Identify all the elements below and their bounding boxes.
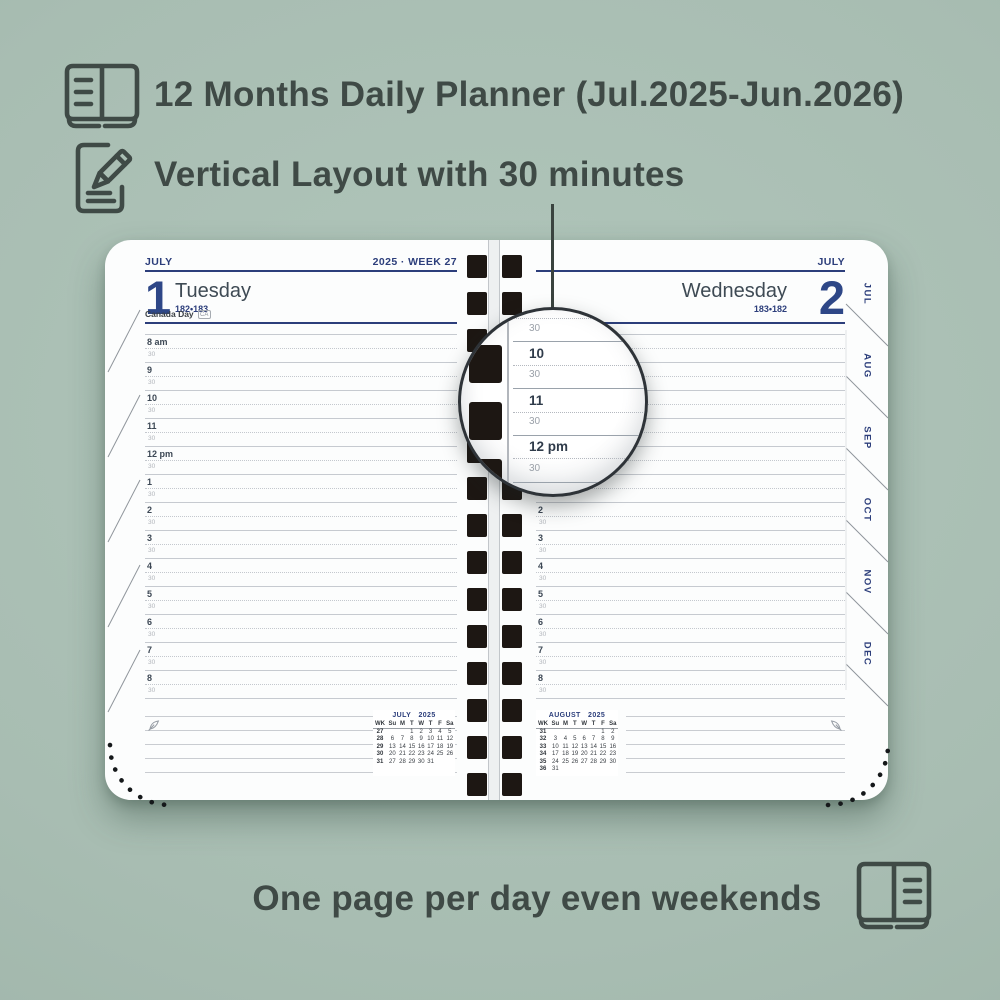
calendar-day-cell	[387, 728, 398, 736]
calendar-day-cell: 29	[598, 759, 607, 767]
product-image: 12 Months Daily Planner (Jul.2025-Jun.20…	[0, 0, 1000, 1000]
spiral-hole	[467, 736, 487, 759]
month-tab-jul: JUL	[846, 258, 888, 330]
calendar-day-cell: 11	[435, 736, 444, 744]
spiral-hole	[502, 625, 522, 648]
spiral-hole	[467, 699, 487, 722]
calendar-day-cell: 28	[398, 759, 407, 767]
spiral-hole	[502, 736, 522, 759]
week-label: 2025 · WEEK 27	[373, 256, 457, 268]
schedule-hour-label: 2	[538, 505, 543, 515]
magnifier-time-label: 30	[529, 323, 540, 334]
schedule-hour-label: 8	[147, 673, 152, 683]
schedule-hour-label: 6	[147, 617, 152, 627]
spiral-hole	[467, 588, 487, 611]
calendar-day-cell: 17	[550, 751, 561, 759]
schedule-half-row: 30	[145, 685, 457, 699]
open-book-lines-icon	[848, 850, 940, 947]
magnifier-row: 30	[513, 366, 648, 389]
schedule-half-label: 30	[539, 575, 546, 582]
month-tab-label: AUG	[862, 353, 873, 379]
schedule-hour-label: 6	[538, 617, 543, 627]
month-tab-label: NOV	[862, 569, 873, 594]
calendar-day-cell: 4	[561, 736, 570, 744]
spiral-hole	[502, 255, 522, 278]
schedule-hour-row: 2	[536, 503, 845, 517]
schedule-half-row: 30	[145, 433, 457, 447]
month-tab-aug: AUG	[846, 330, 888, 402]
spiral-hole	[467, 662, 487, 685]
calendar-day-cell: 15	[598, 744, 607, 752]
footer-row: One page per day even weekends	[96, 850, 1000, 947]
header-rule	[145, 270, 457, 272]
schedule-half-row: 30	[145, 545, 457, 559]
mini-calendar-title: AUGUST 2025	[536, 712, 618, 719]
calendar-day-cell: 26	[445, 751, 455, 759]
calendar-day-cell: 15	[407, 744, 416, 752]
schedule-half-label: 30	[148, 407, 155, 414]
schedule-half-label: 30	[539, 687, 546, 694]
magnifier-row: 10	[513, 342, 648, 365]
schedule-half-row: 30	[145, 517, 457, 531]
schedule-hour-row: 1	[145, 475, 457, 489]
calendar-day-cell: 5	[570, 736, 579, 744]
calendar-day-cell: 29	[373, 744, 387, 752]
calendar-day-cell: 27	[373, 728, 387, 736]
schedule-hour-row: 8	[536, 671, 845, 685]
schedule-half-row: 30	[536, 573, 845, 587]
schedule-half-label: 30	[148, 491, 155, 498]
schedule-half-row: 30	[145, 657, 457, 671]
schedule-half-label: 30	[148, 379, 155, 386]
schedule-half-row: 30	[145, 349, 457, 363]
calendar-col-header: W	[417, 720, 426, 728]
schedule-half-label: 30	[148, 519, 155, 526]
mini-calendar-august: AUGUST 2025WKSuMTWTFSa311232345678933101…	[536, 710, 618, 776]
spiral-hole-magnified	[469, 345, 502, 383]
schedule-hour-label: 3	[538, 533, 543, 543]
magnifier-circle: 301030113012 pm30	[458, 307, 648, 497]
calendar-day-cell: 25	[435, 751, 444, 759]
schedule-hour-row: 7	[536, 643, 845, 657]
month-tab-oct: OCT	[846, 474, 888, 546]
magnifier-time-label: 11	[529, 393, 543, 408]
schedule-hour-label: 2	[147, 505, 152, 515]
schedule-half-label: 30	[539, 659, 546, 666]
calendar-day-cell: 1	[407, 728, 416, 736]
calendar-week-row: 3020212223242526	[373, 751, 455, 759]
quill-icon	[830, 719, 843, 737]
month-tab-label: SEP	[862, 426, 873, 450]
month-label: JULY	[145, 256, 172, 268]
mini-calendar-table: WKSuMTWTFSa31123234567893310111213141516…	[536, 720, 618, 774]
calendar-day-cell: 27	[387, 759, 398, 767]
schedule-hour-label: 11	[147, 421, 157, 431]
schedule-half-label: 30	[539, 547, 546, 554]
calendar-day-cell: 14	[398, 744, 407, 752]
schedule-half-row: 30	[145, 461, 457, 475]
calendar-day-cell: 6	[387, 736, 398, 744]
note-line	[626, 717, 845, 731]
calendar-week-row: 2913141516171819	[373, 744, 455, 752]
calendar-day-cell: 28	[589, 759, 598, 767]
schedule-half-label: 30	[148, 659, 155, 666]
schedule-hour-row: 11	[145, 419, 457, 433]
calendar-day-cell: 8	[407, 736, 416, 744]
calendar-day-cell: 2	[608, 728, 618, 736]
spiral-hole-magnified	[469, 402, 502, 440]
spiral-hole	[467, 551, 487, 574]
schedule-half-row: 30	[145, 601, 457, 615]
schedule-half-label: 30	[148, 547, 155, 554]
month-tab-label: JUL	[862, 283, 873, 305]
left-page: JULY 2025 · WEEK 27 1 Tuesday 182•183 Ca…	[145, 240, 457, 800]
calendar-day-cell: 11	[561, 744, 570, 752]
schedule-hour-label: 8	[538, 673, 543, 683]
holiday-flag-badge: CA	[198, 310, 211, 319]
feature-label: 12 Months Daily Planner (Jul.2025-Jun.20…	[154, 75, 904, 115]
feature-label: Vertical Layout with 30 minutes	[154, 155, 685, 195]
calendar-day-cell	[598, 766, 607, 774]
calendar-col-header: Sa	[445, 720, 455, 728]
magnified-schedule-rows: 301030113012 pm30	[513, 318, 648, 483]
schedule-hour-label: 3	[147, 533, 152, 543]
month-tab-sep: SEP	[846, 402, 888, 474]
calendar-col-header: WK	[536, 720, 550, 728]
spiral-hole-magnified	[469, 307, 502, 326]
calendar-col-header: Sa	[608, 720, 618, 728]
calendar-day-cell	[580, 766, 589, 774]
calendar-col-header: W	[580, 720, 589, 728]
schedule-hour-label: 7	[538, 645, 543, 655]
calendar-day-cell: 12	[445, 736, 455, 744]
note-line	[626, 745, 845, 759]
calendar-day-cell: 1	[598, 728, 607, 736]
calendar-day-cell: 22	[598, 751, 607, 759]
spiral-hole	[502, 662, 522, 685]
calendar-day-cell: 30	[608, 759, 618, 767]
calendar-col-header: T	[589, 720, 598, 728]
schedule-hour-row: 7	[145, 643, 457, 657]
schedule-half-label: 30	[539, 603, 546, 610]
schedule-hour-label: 5	[538, 589, 543, 599]
magnifier-row: 30	[513, 319, 648, 342]
calendar-day-cell	[561, 728, 570, 736]
calendar-day-cell: 16	[417, 744, 426, 752]
schedule-hour-row: 6	[536, 615, 845, 629]
calendar-day-cell: 9	[608, 736, 618, 744]
calendar-day-cell: 20	[580, 751, 589, 759]
calendar-week-row: 312728293031	[373, 759, 455, 767]
spiral-hole	[467, 625, 487, 648]
calendar-day-cell	[570, 728, 579, 736]
month-label: JULY	[818, 256, 845, 268]
schedule-hour-row: 10	[145, 391, 457, 405]
calendar-day-cell	[550, 728, 561, 736]
calendar-day-cell: 25	[561, 759, 570, 767]
calendar-day-cell: 22	[407, 751, 416, 759]
schedule-half-label: 30	[148, 463, 155, 470]
calendar-day-cell: 29	[407, 759, 416, 767]
calendar-col-header: Su	[550, 720, 561, 728]
calendar-week-row: 2712345	[373, 728, 455, 736]
schedule-hour-label: 4	[538, 561, 543, 571]
schedule-hour-row: 4	[145, 559, 457, 573]
header-rule	[536, 270, 845, 272]
calendar-day-cell: 19	[570, 751, 579, 759]
magnifier-row: 11	[513, 389, 648, 412]
calendar-day-cell: 21	[398, 751, 407, 759]
calendar-day-cell: 21	[589, 751, 598, 759]
left-page-header: JULY 2025 · WEEK 27	[145, 256, 457, 268]
schedule-hour-row: 6	[145, 615, 457, 629]
right-notes-section	[626, 716, 845, 773]
calendar-col-header: WK	[373, 720, 387, 728]
mini-calendar-table: WKSuMTWTFSa27123452867891011122913141516…	[373, 720, 455, 766]
calendar-day-cell: 5	[445, 728, 455, 736]
schedule-hour-label: 12 pm	[147, 449, 173, 459]
schedule-hour-row: 3	[145, 531, 457, 545]
feature-row-layout: Vertical Layout with 30 minutes	[50, 126, 685, 224]
calendar-week-row: 3417181920212223	[536, 751, 618, 759]
calendar-day-cell: 28	[373, 736, 387, 744]
calendar-day-cell	[589, 766, 598, 774]
schedule-half-label: 30	[148, 351, 155, 358]
calendar-header-row: WKSuMTWTFSa	[373, 720, 455, 728]
spiral-hole-magnified	[469, 459, 502, 497]
calendar-day-cell: 3	[426, 728, 435, 736]
holiday-label: Canada DayCA	[145, 309, 211, 319]
calendar-day-cell: 31	[373, 759, 387, 767]
schedule-hour-row: 8 am	[145, 335, 457, 349]
spiral-hole	[467, 255, 487, 278]
calendar-day-cell: 10	[550, 744, 561, 752]
calendar-day-cell: 7	[398, 736, 407, 744]
calendar-day-cell	[445, 759, 455, 767]
schedule-hour-row: 12 pm	[145, 447, 457, 461]
page-edge-line-magnified	[507, 307, 509, 497]
calendar-header-row: WKSuMTWTFSa	[536, 720, 618, 728]
schedule-hour-label: 5	[147, 589, 152, 599]
magnifier-time-label: 12 pm	[529, 439, 568, 454]
schedule-half-row: 30	[145, 629, 457, 643]
calendar-day-cell: 23	[608, 751, 618, 759]
calendar-col-header: T	[570, 720, 579, 728]
schedule-half-row: 30	[536, 601, 845, 615]
calendar-day-cell: 2	[417, 728, 426, 736]
calendar-day-cell: 9	[417, 736, 426, 744]
schedule-half-row: 30	[145, 405, 457, 419]
calendar-day-cell: 34	[536, 751, 550, 759]
schedule-hour-label: 1	[147, 477, 152, 487]
callout-connector-line	[551, 204, 554, 312]
open-book-icon	[50, 55, 154, 135]
calendar-col-header: M	[398, 720, 407, 728]
magnifier-row: 12 pm	[513, 436, 648, 459]
schedule-half-row: 30	[145, 377, 457, 391]
weekday-label: Wednesday	[682, 280, 787, 303]
schedule-half-label: 30	[148, 435, 155, 442]
calendar-day-cell	[561, 766, 570, 774]
schedule-hour-label: 9	[147, 365, 152, 375]
schedule-half-row: 30	[145, 573, 457, 587]
calendar-day-cell: 24	[426, 751, 435, 759]
calendar-day-cell: 12	[570, 744, 579, 752]
magnifier-row: 30	[513, 459, 648, 482]
calendar-week-row: 3112	[536, 728, 618, 736]
schedule-half-row: 30	[536, 657, 845, 671]
calendar-day-cell: 26	[570, 759, 579, 767]
calendar-day-cell	[570, 766, 579, 774]
schedule-hour-row: 9	[145, 363, 457, 377]
schedule-hour-label: 8 am	[147, 337, 168, 347]
calendar-day-cell: 16	[608, 744, 618, 752]
schedule-half-label: 30	[539, 631, 546, 638]
calendar-col-header: T	[426, 720, 435, 728]
magnifier-time-label: 30	[529, 369, 540, 380]
calendar-day-cell: 8	[598, 736, 607, 744]
schedule-half-row: 30	[536, 545, 845, 559]
calendar-col-header: F	[435, 720, 444, 728]
calendar-day-cell: 18	[435, 744, 444, 752]
calendar-day-cell	[608, 766, 618, 774]
month-tab-dec: DEC	[846, 618, 888, 690]
schedule-hour-label: 4	[147, 561, 152, 571]
left-schedule-grid: 8 am309301030113012 pm301302303304305306…	[145, 334, 457, 699]
calendar-day-cell: 20	[387, 751, 398, 759]
schedule-half-label: 30	[148, 631, 155, 638]
schedule-half-label: 30	[148, 687, 155, 694]
magnifier-time-label: 30	[529, 463, 540, 474]
calendar-day-cell: 13	[387, 744, 398, 752]
month-tab-nov: NOV	[846, 546, 888, 618]
schedule-hour-row: 8	[145, 671, 457, 685]
note-line	[626, 759, 845, 773]
calendar-day-cell	[435, 759, 444, 767]
calendar-week-row: 3524252627282930	[536, 759, 618, 767]
magnifier-time-label: 10	[529, 346, 544, 361]
calendar-day-cell	[589, 728, 598, 736]
calendar-day-cell: 18	[561, 751, 570, 759]
magnifier-time-label: 30	[529, 416, 540, 427]
spiral-hole	[502, 699, 522, 722]
schedule-half-row: 30	[536, 629, 845, 643]
calendar-day-cell: 31	[550, 766, 561, 774]
calendar-day-cell: 17	[426, 744, 435, 752]
calendar-day-cell: 4	[435, 728, 444, 736]
calendar-day-cell: 24	[550, 759, 561, 767]
calendar-day-cell: 30	[373, 751, 387, 759]
calendar-day-cell: 31	[536, 728, 550, 736]
schedule-hour-row: 5	[536, 587, 845, 601]
calendar-day-cell: 33	[536, 744, 550, 752]
spiral-hole	[502, 292, 522, 315]
date-number: 2	[819, 276, 845, 320]
calendar-week-row: 3310111213141516	[536, 744, 618, 752]
schedule-half-label: 30	[148, 603, 155, 610]
schedule-hour-row: 5	[145, 587, 457, 601]
spiral-hole	[502, 551, 522, 574]
month-tab-strip: JULAUGSEPOCTNOVDEC	[846, 258, 888, 690]
quill-icon	[147, 719, 160, 737]
spiral-hole	[502, 514, 522, 537]
schedule-hour-row: 4	[536, 559, 845, 573]
mini-calendar-title: JULY 2025	[373, 712, 455, 719]
calendar-day-cell: 30	[417, 759, 426, 767]
calendar-day-cell: 3	[550, 736, 561, 744]
footer-label: One page per day even weekends	[252, 879, 821, 919]
calendar-day-cell: 23	[417, 751, 426, 759]
calendar-week-row: 323456789	[536, 736, 618, 744]
pencil-note-icon	[50, 131, 154, 219]
note-line	[626, 731, 845, 745]
schedule-hour-row: 2	[145, 503, 457, 517]
spiral-hole	[502, 773, 522, 796]
calendar-col-header: F	[598, 720, 607, 728]
right-page-header: JULY	[536, 256, 845, 268]
magnifier-row: 30	[513, 413, 648, 436]
calendar-col-header: T	[407, 720, 416, 728]
schedule-hour-label: 10	[147, 393, 157, 403]
calendar-day-cell: 6	[580, 736, 589, 744]
calendar-day-cell: 13	[580, 744, 589, 752]
schedule-hour-label: 7	[147, 645, 152, 655]
schedule-half-row: 30	[536, 685, 845, 699]
month-tab-label: OCT	[862, 498, 873, 523]
schedule-half-row: 30	[145, 489, 457, 503]
weekday-label: Tuesday	[175, 280, 251, 303]
calendar-day-cell: 36	[536, 766, 550, 774]
calendar-day-cell	[580, 728, 589, 736]
month-tab-label: DEC	[862, 642, 873, 667]
calendar-day-cell: 35	[536, 759, 550, 767]
calendar-day-cell: 27	[580, 759, 589, 767]
spiral-hole	[502, 588, 522, 611]
calendar-week-row: 3631	[536, 766, 618, 774]
schedule-half-row: 30	[536, 517, 845, 531]
calendar-day-cell: 14	[589, 744, 598, 752]
calendar-day-cell: 31	[426, 759, 435, 767]
mini-calendar-july: JULY 2025WKSuMTWTFSa27123452867891011122…	[373, 710, 455, 776]
date-rule	[145, 322, 457, 324]
spiral-hole	[467, 773, 487, 796]
schedule-hour-row: 3	[536, 531, 845, 545]
spiral-hole	[467, 514, 487, 537]
schedule-half-label: 30	[148, 575, 155, 582]
schedule-half-label: 30	[539, 519, 546, 526]
calendar-day-cell: 32	[536, 736, 550, 744]
calendar-col-header: Su	[387, 720, 398, 728]
calendar-day-cell	[398, 728, 407, 736]
calendar-day-cell: 10	[426, 736, 435, 744]
day-of-year: 183•182	[754, 304, 787, 314]
calendar-day-cell: 19	[445, 744, 455, 752]
calendar-week-row: 286789101112	[373, 736, 455, 744]
calendar-day-cell: 7	[589, 736, 598, 744]
calendar-col-header: M	[561, 720, 570, 728]
